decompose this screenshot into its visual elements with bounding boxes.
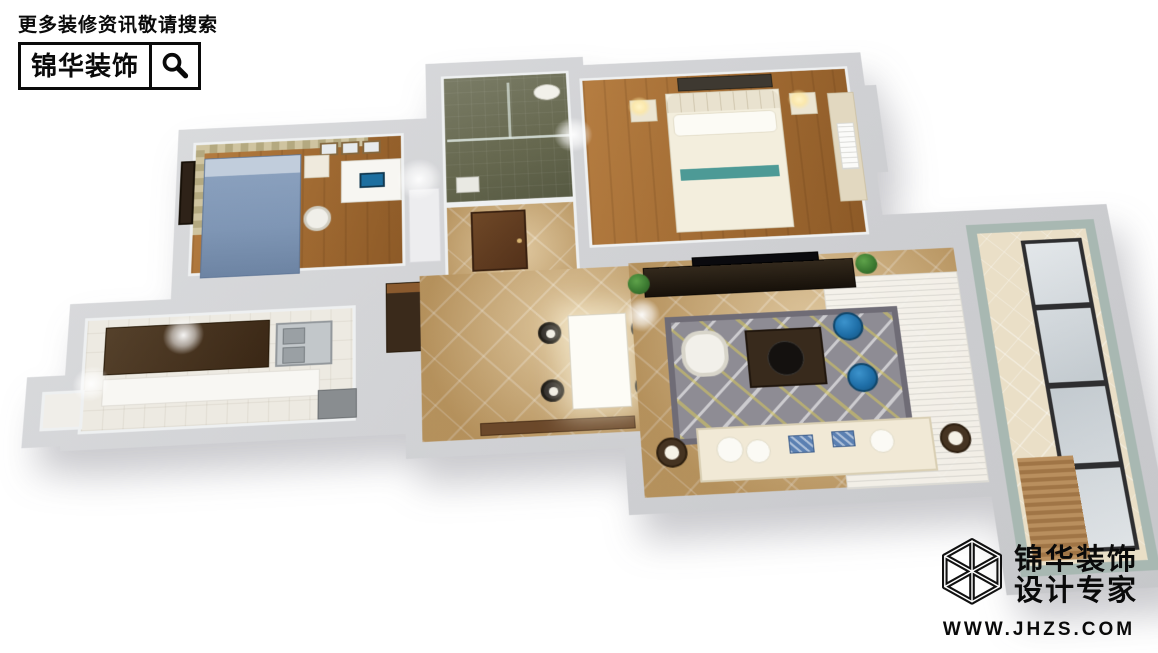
kitchen-counter — [101, 369, 320, 407]
website-url: WWW.JHZS.COM — [940, 619, 1138, 641]
coffee-table — [744, 327, 827, 388]
pillow — [205, 155, 301, 177]
pillow — [868, 428, 896, 453]
toilet — [533, 84, 560, 101]
dining-chair — [538, 322, 562, 345]
page: { "header": { "search_hint": "更多装修资讯敬请搜索… — [0, 0, 1158, 651]
closet — [408, 188, 441, 263]
pillow — [788, 434, 815, 453]
room-utility — [39, 390, 84, 431]
pillows — [673, 110, 778, 137]
tea-tray — [766, 340, 806, 376]
stove — [318, 388, 357, 419]
kitchen-sink — [275, 320, 332, 367]
study-bed — [200, 154, 302, 278]
header-branding: 更多装修资讯敬请搜索 锦华装饰 — [18, 10, 218, 90]
sink-basin — [282, 346, 305, 363]
window — [178, 161, 195, 225]
room-kitchen — [78, 305, 356, 434]
dining-table — [567, 313, 632, 410]
sink-basin — [283, 327, 306, 344]
room-bathroom — [441, 71, 576, 206]
kitchen-cabinets — [103, 320, 270, 376]
entry-door — [471, 209, 529, 271]
nightstand — [304, 155, 329, 179]
shower-glass — [506, 83, 511, 139]
pillow — [745, 439, 772, 464]
bathroom-sink — [456, 176, 480, 193]
bed-runner — [680, 165, 780, 181]
room-study — [188, 133, 406, 276]
room-master-bedroom — [579, 66, 869, 248]
search-hint-text: 更多装修资讯敬请搜索 — [18, 10, 218, 37]
magnifier-icon — [149, 45, 198, 87]
picture-frame — [341, 141, 359, 155]
plant — [854, 253, 878, 274]
brand-search-box: 锦华装饰 — [18, 42, 201, 90]
footer-brand-line2: 设计专家 — [1014, 576, 1138, 606]
room-living — [628, 248, 989, 498]
footer-brand-line1: 锦华装饰 — [1014, 545, 1138, 575]
floor-plan — [26, 16, 1126, 620]
desk-chair — [303, 205, 331, 231]
computer-monitor — [359, 172, 384, 188]
pillow — [715, 436, 744, 463]
cube-wireframe-logo-icon — [940, 537, 1004, 614]
footer-branding: 锦华装饰 设计专家 WWW.JHZS.COM — [940, 537, 1138, 641]
master-bed — [665, 89, 794, 233]
brand-name: 锦华装饰 — [21, 45, 149, 87]
dining-chair — [540, 379, 565, 403]
armchair — [680, 329, 731, 377]
desk — [341, 158, 402, 203]
picture-frame — [362, 140, 380, 154]
door-knob — [517, 238, 522, 243]
pillow — [831, 430, 856, 447]
